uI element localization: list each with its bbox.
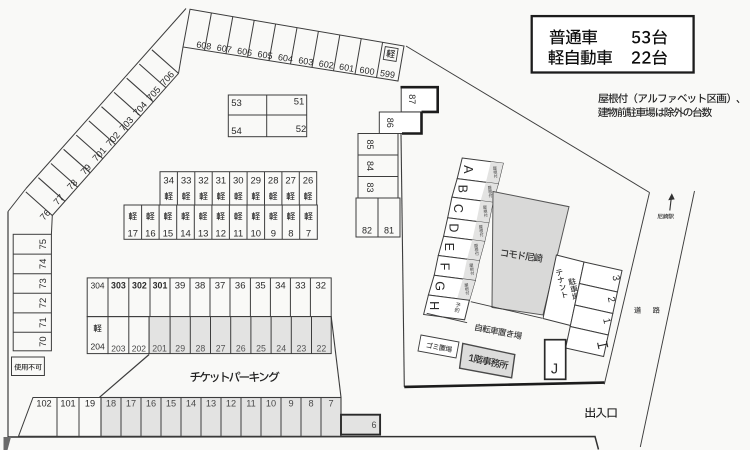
- svg-text:33: 33: [295, 281, 306, 292]
- svg-text:73: 73: [38, 278, 49, 289]
- svg-text:23: 23: [297, 344, 307, 354]
- svg-text:B: B: [456, 185, 470, 193]
- svg-text:27: 27: [285, 176, 296, 187]
- svg-text:F: F: [437, 263, 451, 271]
- svg-text:86: 86: [385, 118, 395, 128]
- svg-text:39: 39: [175, 281, 186, 292]
- svg-text:52: 52: [296, 124, 307, 135]
- svg-text:70: 70: [38, 336, 49, 347]
- svg-text:10: 10: [251, 229, 262, 240]
- svg-text:204: 204: [91, 342, 105, 352]
- svg-text:8: 8: [308, 399, 313, 409]
- svg-text:E: E: [442, 243, 456, 251]
- svg-text:27: 27: [216, 344, 226, 354]
- svg-text:22: 22: [317, 344, 327, 354]
- svg-text:32: 32: [316, 281, 327, 292]
- svg-text:29: 29: [175, 344, 185, 354]
- svg-text:12: 12: [226, 399, 236, 409]
- svg-text:17: 17: [128, 229, 139, 240]
- svg-text:7: 7: [306, 229, 311, 240]
- svg-text:16: 16: [146, 399, 156, 409]
- svg-text:101: 101: [60, 399, 75, 409]
- svg-text:9: 9: [288, 399, 293, 409]
- svg-text:53: 53: [231, 98, 242, 109]
- svg-text:24: 24: [276, 344, 286, 354]
- svg-text:26: 26: [303, 176, 314, 187]
- svg-text:11: 11: [233, 229, 243, 240]
- svg-text:71: 71: [38, 317, 49, 328]
- svg-text:202: 202: [132, 344, 146, 354]
- svg-text:74: 74: [38, 259, 49, 270]
- svg-text:18: 18: [106, 399, 116, 409]
- svg-text:12: 12: [215, 229, 226, 240]
- svg-text:36: 36: [235, 281, 246, 292]
- svg-text:54: 54: [231, 126, 242, 137]
- svg-text:26: 26: [236, 344, 246, 354]
- svg-text:14: 14: [180, 229, 191, 240]
- svg-text:6: 6: [371, 420, 376, 430]
- svg-text:37: 37: [215, 281, 226, 292]
- svg-text:13: 13: [198, 229, 209, 240]
- svg-text:15: 15: [163, 229, 174, 240]
- svg-text:81: 81: [384, 226, 394, 236]
- svg-text:302: 302: [132, 281, 147, 291]
- svg-text:303: 303: [111, 281, 126, 291]
- svg-text:51: 51: [294, 97, 305, 108]
- svg-text:30: 30: [233, 176, 244, 187]
- svg-text:C: C: [451, 204, 465, 213]
- svg-text:G: G: [432, 281, 446, 291]
- svg-text:201: 201: [152, 344, 167, 354]
- svg-text:H: H: [427, 301, 441, 310]
- svg-text:32: 32: [198, 176, 209, 187]
- svg-text:9: 9: [271, 229, 276, 240]
- svg-text:8: 8: [288, 229, 293, 240]
- svg-text:304: 304: [91, 281, 105, 291]
- svg-text:11: 11: [246, 399, 256, 409]
- svg-text:102: 102: [36, 399, 51, 409]
- svg-text:82: 82: [362, 226, 372, 236]
- svg-text:35: 35: [255, 281, 266, 292]
- svg-text:85: 85: [365, 139, 375, 149]
- svg-text:10: 10: [266, 399, 276, 409]
- svg-text:28: 28: [268, 176, 279, 187]
- svg-text:15: 15: [166, 399, 176, 409]
- svg-text:34: 34: [163, 176, 174, 187]
- svg-text:83: 83: [365, 182, 375, 192]
- svg-text:75: 75: [38, 239, 49, 250]
- svg-text:16: 16: [145, 229, 156, 240]
- svg-text:84: 84: [365, 161, 375, 171]
- svg-text:72: 72: [38, 298, 49, 309]
- svg-text:38: 38: [195, 281, 206, 292]
- svg-text:25: 25: [256, 344, 266, 354]
- svg-text:31: 31: [216, 176, 227, 187]
- svg-text:13: 13: [206, 399, 216, 409]
- svg-text:33: 33: [181, 176, 192, 187]
- svg-text:301: 301: [153, 281, 168, 291]
- svg-text:34: 34: [275, 281, 286, 292]
- svg-text:7: 7: [328, 399, 333, 409]
- svg-text:D: D: [447, 223, 461, 232]
- svg-text:19: 19: [85, 399, 95, 409]
- svg-text:29: 29: [251, 176, 262, 187]
- svg-text:J: J: [551, 362, 558, 378]
- svg-text:14: 14: [186, 399, 196, 409]
- svg-text:203: 203: [111, 344, 125, 354]
- svg-text:87: 87: [407, 94, 417, 104]
- svg-text:A: A: [461, 165, 475, 174]
- svg-text:17: 17: [126, 399, 136, 409]
- svg-text:28: 28: [196, 344, 206, 354]
